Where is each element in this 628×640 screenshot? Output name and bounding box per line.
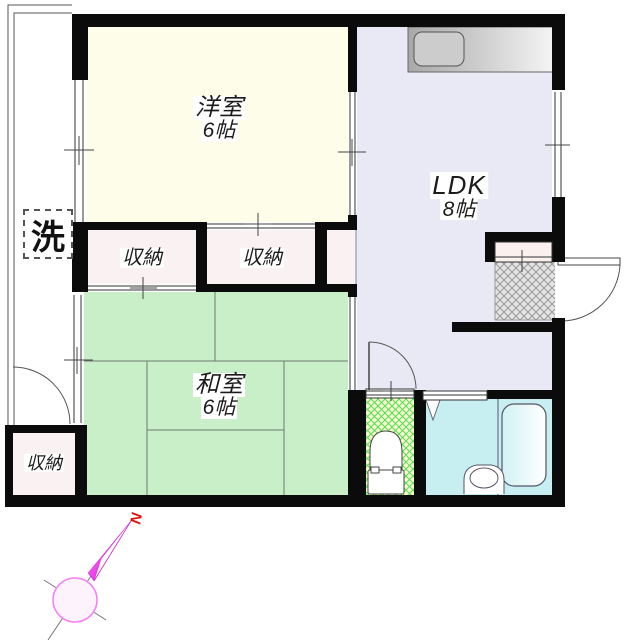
ldk-name: LDK [430,172,488,199]
floor-plan: N 洋室 6帖 LDK 8帖 和室 6帖 収納 収納 収納 洗 [0,0,628,640]
laundry-label: 洗 [31,210,65,259]
ldk-label: LDK 8帖 [430,172,488,220]
japanese-room-size: 6帖 [201,398,238,419]
japanese-room-name: 和室 [193,373,245,397]
compass-icon: N [44,511,145,640]
laundry-spot: 洗 [23,209,73,259]
compass-needle [88,521,131,581]
floor-plan-drawing: N [0,0,628,640]
toilet-threshold [366,389,414,398]
japanese-room-label: 和室 6帖 [193,373,245,419]
closet-nook-floor [327,230,356,284]
closet-bottom-label: 収納 [24,454,64,472]
front-door [558,258,620,321]
western-room-label: 洋室 6帖 [193,96,245,142]
kitchen-counter [408,27,553,72]
ldk-size: 8帖 [441,199,478,220]
toilet-fixture [368,431,404,494]
genkan-floor [495,262,555,320]
western-room-name: 洋室 [193,96,245,120]
bathtub-icon [502,404,546,486]
toilet-bowl-icon [370,431,402,472]
front-door-leaf [558,258,620,265]
kitchen-sink-icon [414,32,464,66]
toilet-tank-icon [368,470,404,494]
closet-left-label: 収納 [120,248,164,268]
washbasin-icon [470,468,498,488]
western-room-size: 6帖 [201,121,238,142]
closet-right-label: 収納 [240,248,284,268]
shoe-closet-floor [495,242,552,262]
balcony-door [13,367,70,424]
